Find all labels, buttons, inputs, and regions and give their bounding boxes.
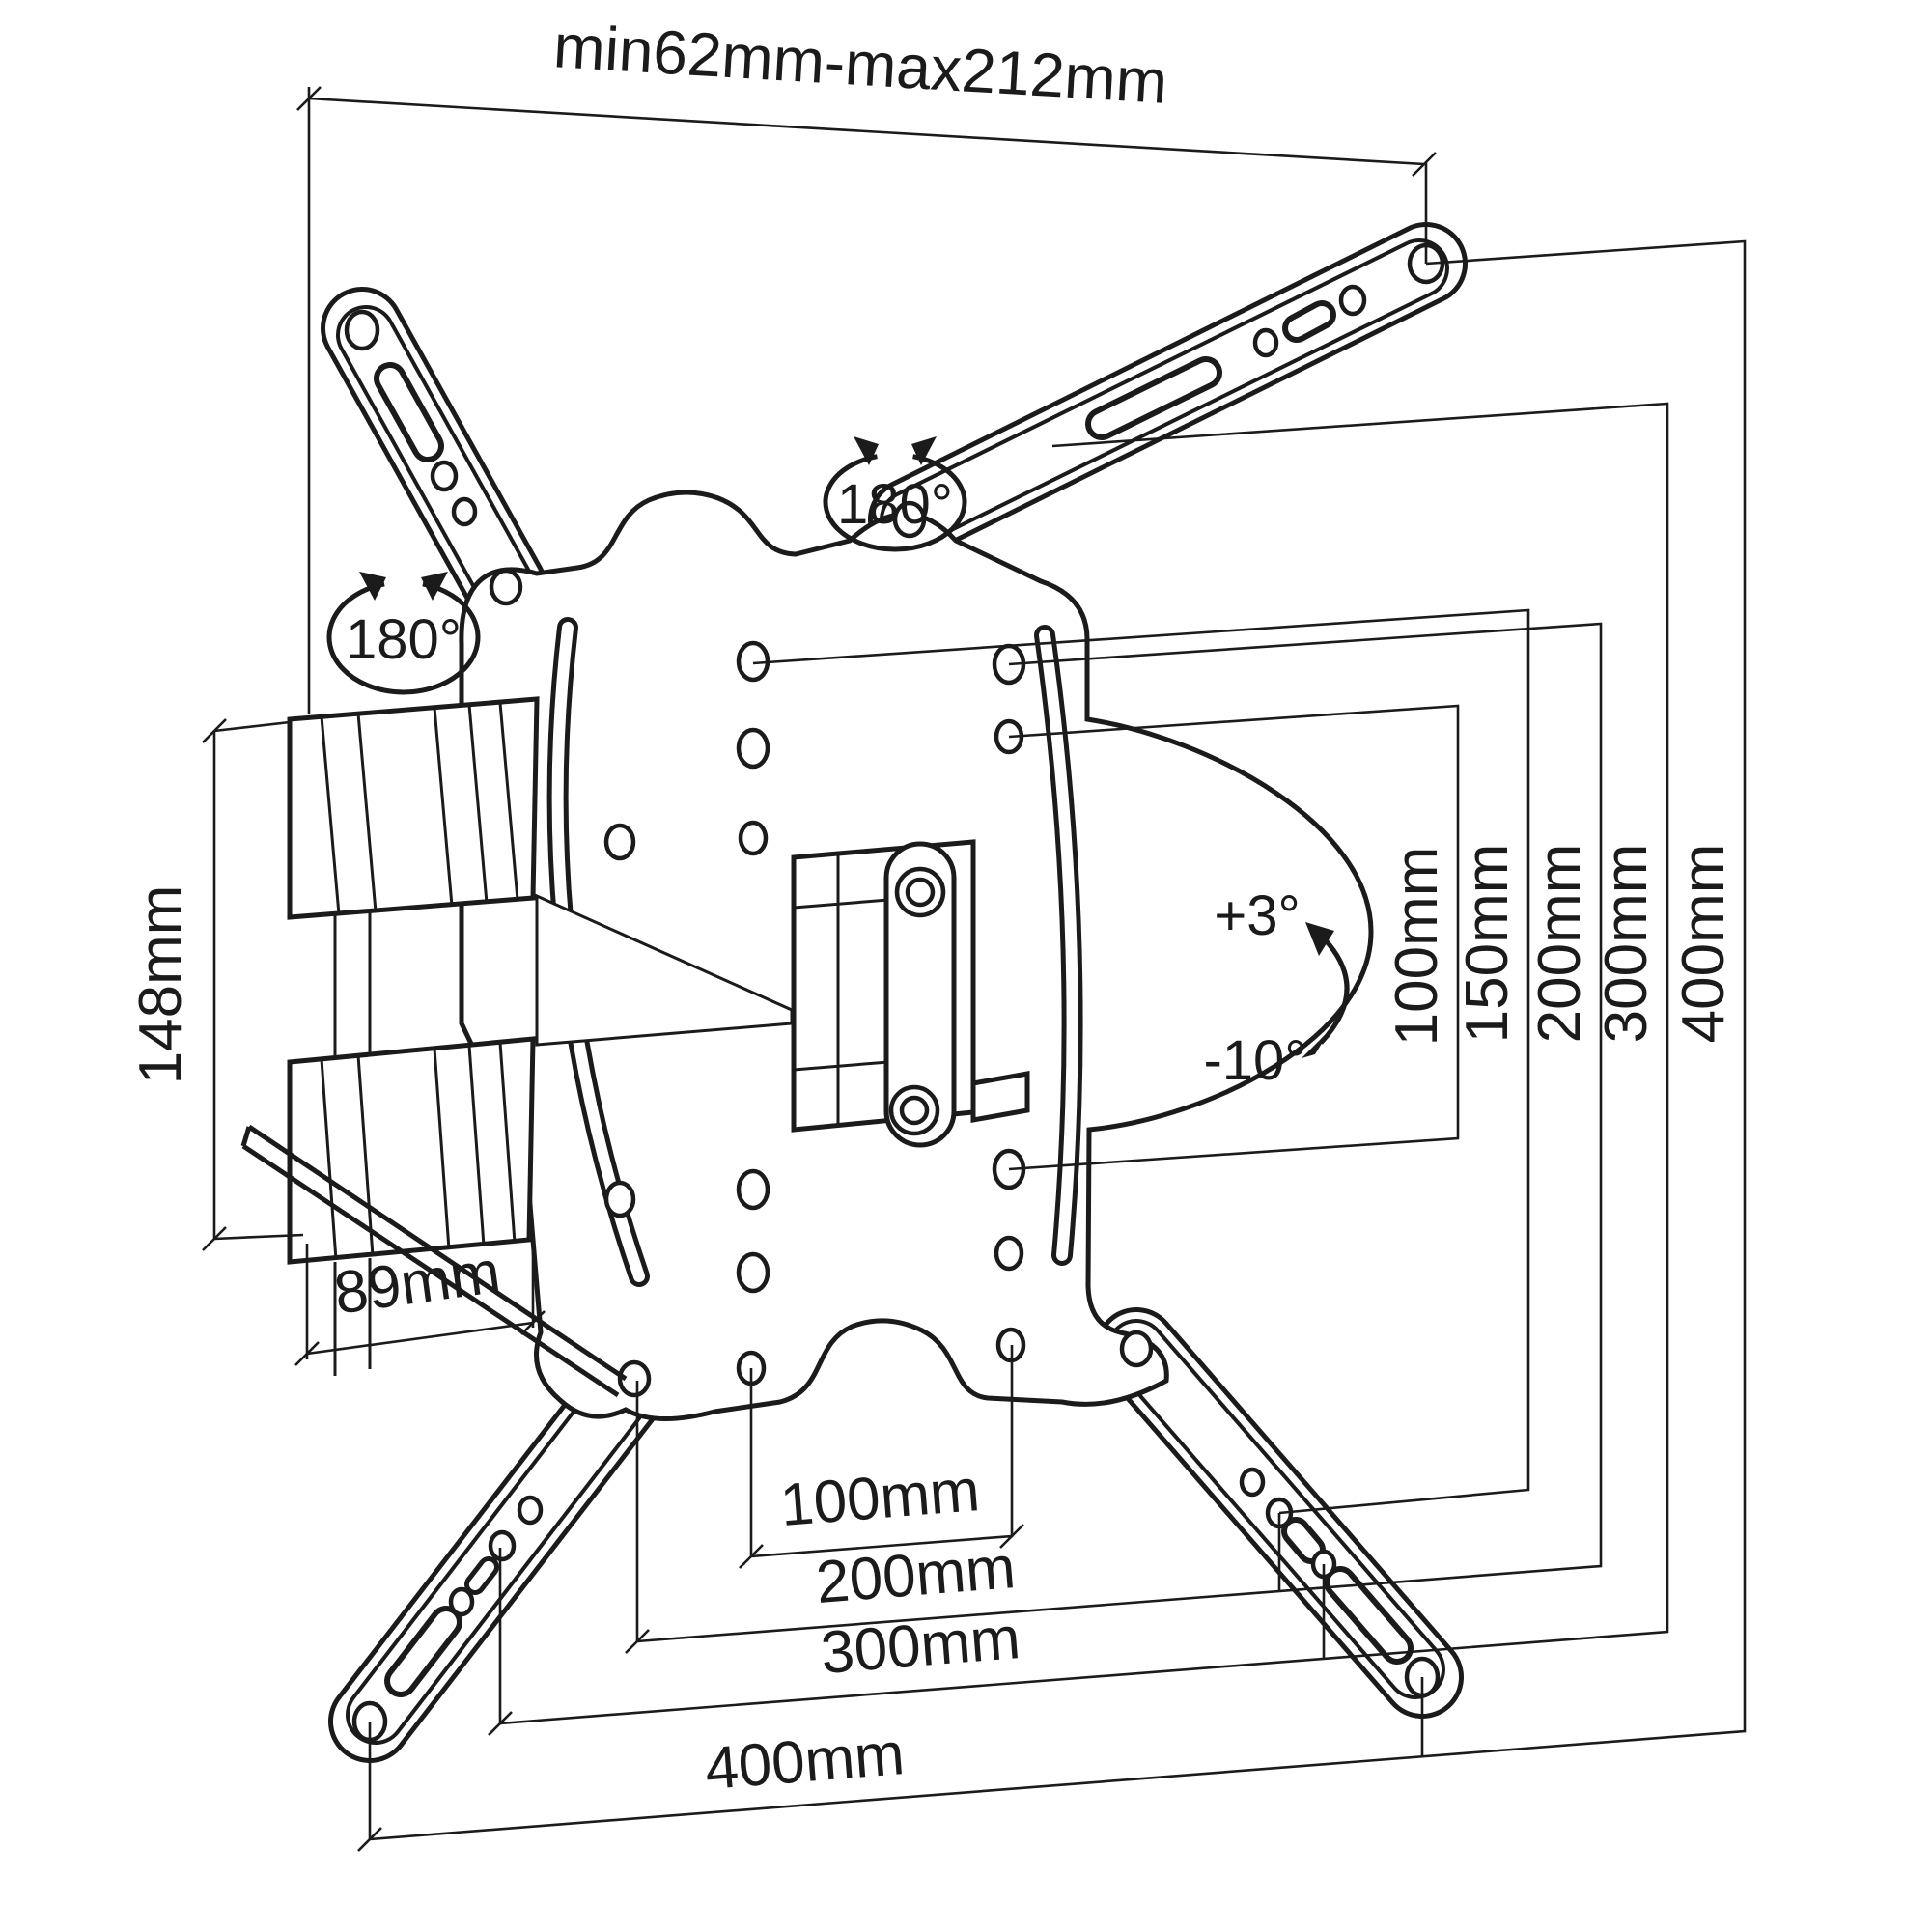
upper-arm-block xyxy=(290,699,537,917)
dim-label-width-100mm: 100mm xyxy=(778,1457,983,1539)
screw-boss xyxy=(902,1098,927,1123)
dim-label-148mm: 148mm xyxy=(127,885,194,1085)
dim-label-height-200mm: 200mm xyxy=(1526,844,1593,1044)
dim-label-height-150mm: 150mm xyxy=(1454,844,1521,1044)
dim-label-height-400mm: 400mm xyxy=(1670,844,1737,1044)
arm-bottom-right xyxy=(1136,1349,1438,1695)
arm-bottom-left xyxy=(354,1379,634,1740)
arm-top-right xyxy=(910,245,1442,519)
pivot-hole xyxy=(1122,1332,1151,1365)
dim-label-height-100mm: 100mm xyxy=(1384,847,1450,1047)
screw-boss xyxy=(908,880,933,905)
lower-arm-block xyxy=(290,1039,533,1262)
arm-top-left xyxy=(347,312,506,587)
head-tab xyxy=(973,1074,1027,1120)
tilt-label-down: -10° xyxy=(1203,1029,1306,1092)
swivel-label-left: 180° xyxy=(346,608,462,671)
arm-end-hole xyxy=(347,312,378,349)
diagram-canvas: min62mm-max212mm 148mm 89mm 180° 180° +3… xyxy=(0,0,1932,1932)
swivel-label-top: 180° xyxy=(837,473,953,536)
dim-label-width-200mm: 200mm xyxy=(814,1534,1019,1616)
dim-label-width-300mm: 300mm xyxy=(819,1605,1023,1687)
dim-label-top-span: min62mm-max212mm xyxy=(551,11,1169,117)
tilt-label-up: +3° xyxy=(1214,884,1300,947)
dim-label-width-400mm: 400mm xyxy=(703,1721,908,1803)
dim-label-height-300mm: 300mm xyxy=(1593,844,1660,1044)
wall-mount-diagram: min62mm-max212mm 148mm 89mm 180° 180° +3… xyxy=(0,0,1932,1932)
pivot-hole xyxy=(491,571,520,603)
